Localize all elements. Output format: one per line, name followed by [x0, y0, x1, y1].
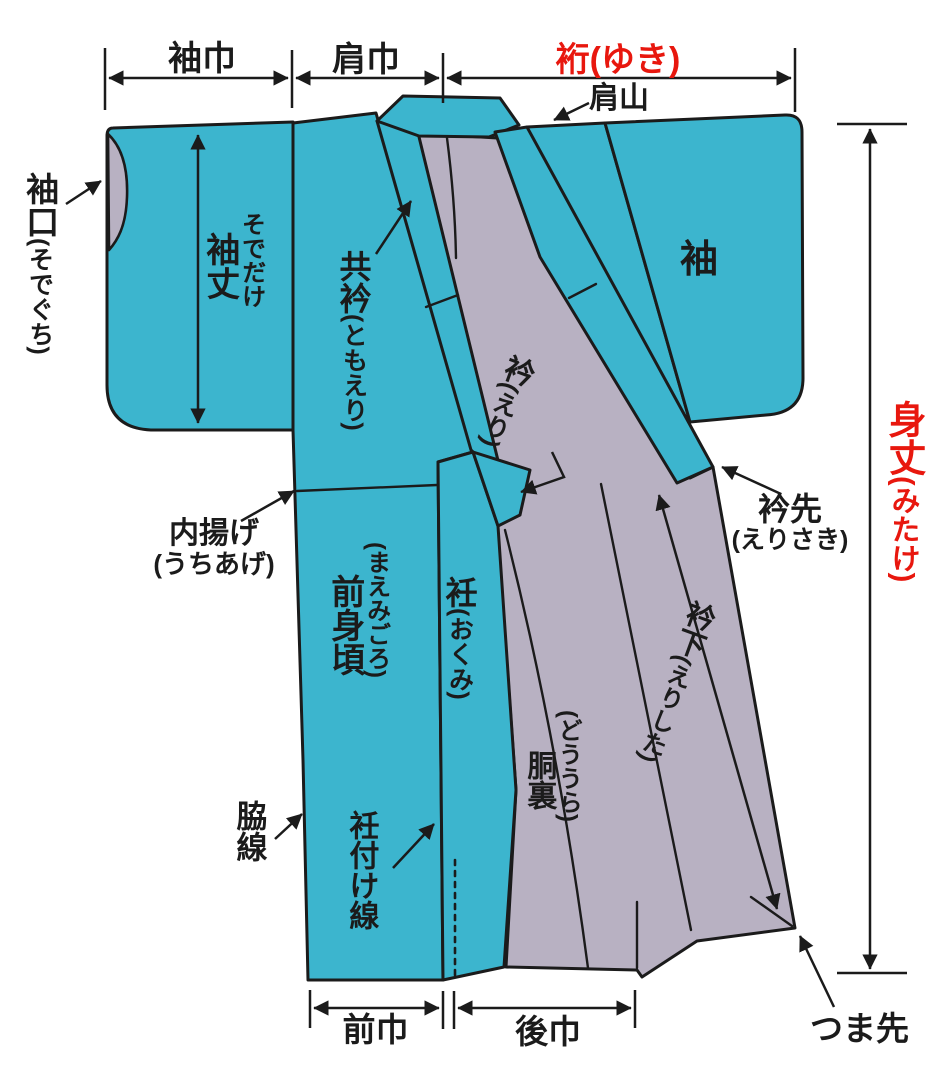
label-sodetake-kanji: 袖丈: [201, 212, 238, 308]
label-katayama: 肩山: [589, 83, 649, 115]
label-okumi-kanji: 衽: [442, 576, 478, 608]
label-kata-haba: 肩巾: [312, 42, 420, 79]
label-douura: (どううら) 胴裏: [522, 710, 580, 822]
label-tomoeri-kana: (ともえり): [340, 314, 368, 431]
label-sodeguchi-kana: (そでぐち): [26, 238, 54, 355]
label-douura-kanji: 胴裏: [522, 710, 554, 822]
wakisen-pointer: [275, 814, 302, 839]
label-mitake: 身丈(みたけ): [882, 400, 923, 582]
label-sode-haba: 袖巾: [148, 41, 256, 78]
label-maemigoro: (まえみごろ) 前身頃: [326, 542, 389, 678]
label-tomoeri: 共衿(ともえり): [336, 250, 371, 431]
erisaki-pointer: [722, 467, 781, 494]
label-wakisen: 脇線: [232, 800, 265, 862]
label-tsumasaki: つま先: [810, 1011, 909, 1047]
label-maemigoro-kanji: 前身頃: [326, 542, 363, 678]
label-douura-kana: (どううら): [554, 710, 580, 822]
katayama-pointer: [554, 103, 589, 120]
label-uchiage: 内揚げ (うちあげ): [132, 518, 296, 578]
label-okumi-kana: (おくみ): [446, 608, 474, 700]
label-okumi-tsuke-sen: 衽付け線: [344, 810, 376, 930]
label-mitake-kanji: 身丈: [882, 400, 924, 476]
label-mitake-kana: (みたけ): [887, 476, 919, 582]
label-sodetake: そでだけ 袖丈: [201, 212, 264, 308]
label-yuki: 裄(ゆき): [538, 42, 698, 79]
label-sodeguchi: 袖口(そでぐち): [22, 172, 58, 355]
label-ushiro-haba: 後巾: [488, 1014, 608, 1050]
label-maemigoro-kana: (まえみごろ): [363, 542, 389, 678]
label-erisaki-kana: (えりさき): [714, 527, 866, 554]
label-erisaki-kanji: 衿先: [714, 492, 866, 527]
label-uchiage-kanji: 内揚げ: [132, 518, 296, 550]
label-sode: 袖: [680, 240, 718, 281]
label-erisaki: 衿先 (えりさき): [714, 492, 866, 554]
label-sodeguchi-kanji: 袖口: [22, 172, 59, 238]
label-okumi: 衽(おくみ): [442, 576, 477, 700]
sodeguchi-pointer: [66, 181, 101, 204]
tsumasaki-pointer: [800, 936, 834, 1007]
label-tomoeri-kanji: 共衿: [336, 250, 372, 314]
label-sodetake-kana: そでだけ: [238, 212, 264, 308]
label-mae-haba: 前巾: [318, 1012, 433, 1048]
kimono-parts-diagram: 袖巾 肩巾 裄(ゆき) 肩山 袖口(そでぐち) そでだけ 袖丈 共衿(ともえり)…: [0, 0, 950, 1080]
left-sleeve-shape: [107, 122, 293, 430]
label-uchiage-kana: (うちあげ): [132, 550, 296, 578]
